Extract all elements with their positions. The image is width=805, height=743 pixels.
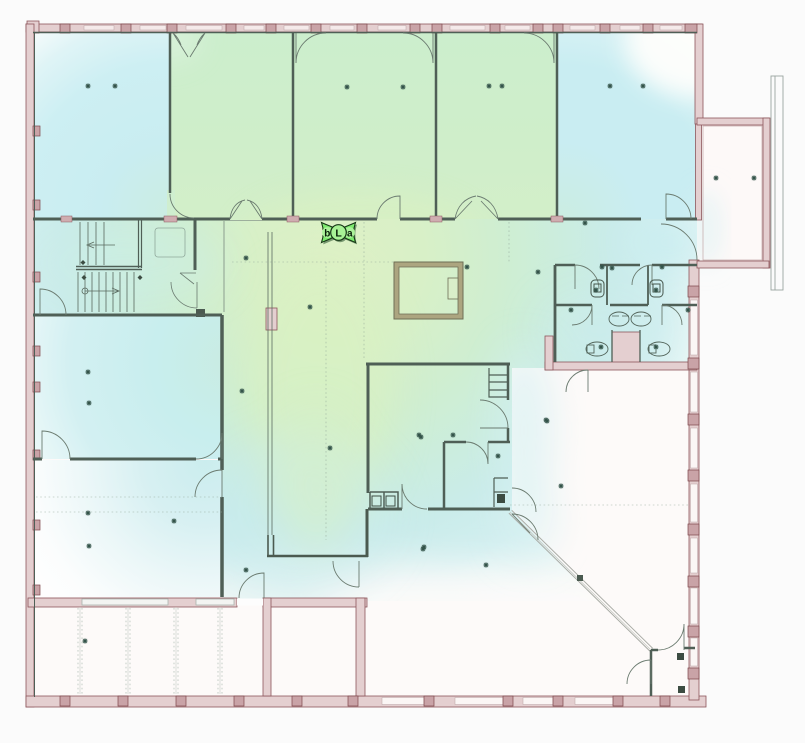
svg-text:L: L xyxy=(335,228,342,240)
svg-text:b: b xyxy=(324,228,330,239)
svg-text:a: a xyxy=(347,228,353,239)
